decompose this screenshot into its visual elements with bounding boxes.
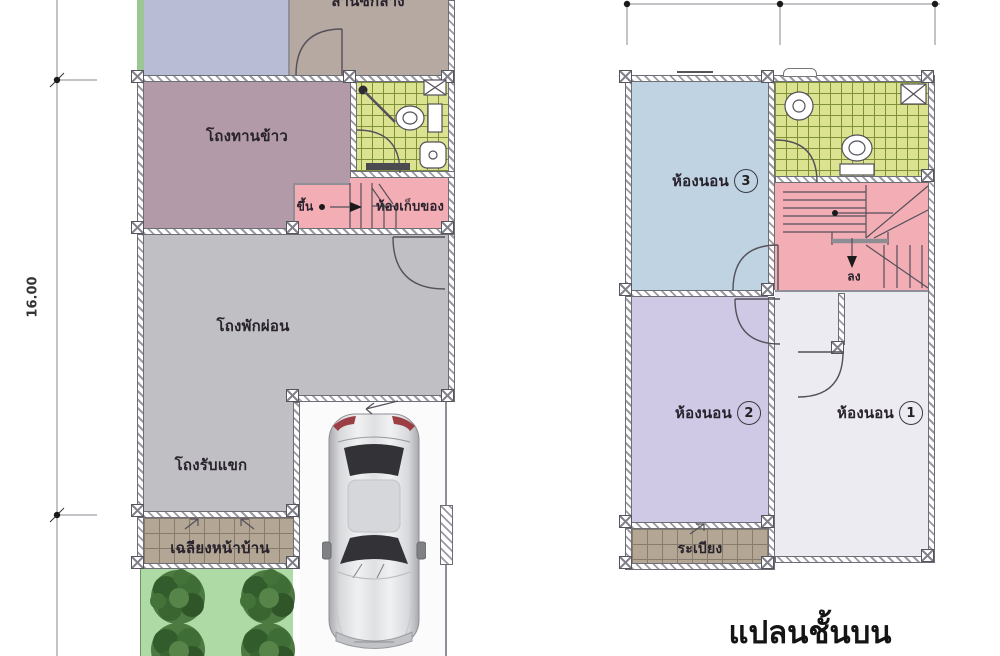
bedroom-1-number: 1 [899,401,923,425]
wall-segment [625,522,768,529]
side-yard-green-strip [137,0,144,75]
wall-segment [625,563,775,570]
wall-segment [625,290,768,297]
wall-segment [137,563,300,569]
wall-segment [137,75,455,82]
living-hall [144,235,448,395]
wall-pier [761,70,774,83]
wall-pier [761,515,774,528]
stair-boundary-line [293,183,350,185]
wall-pier [619,283,632,296]
dimension-line-top [624,1,940,45]
wall-pier [286,504,299,517]
wall-pier [619,515,632,528]
wall-segment [137,511,300,518]
wall-pier [131,504,144,517]
wall-segment [838,293,845,345]
floor-plan-canvas: ลานซักล้าง โถงทานข้าว ขึ้น ห้องเก็บของ โ… [0,0,1000,656]
wall-segment [928,75,935,563]
wall-pier [131,70,144,83]
wall-pier [441,389,454,402]
washing-area-label: ลานซักล้าง [331,0,405,13]
bedroom-1-text: ห้องนอน [837,401,894,425]
storage-label: ห้องเก็บของ [376,196,444,217]
wall-segment [350,171,455,178]
wall-pier [619,70,632,83]
wall-pier [921,70,934,83]
wall-pier [131,221,144,234]
stairs-down-label: ลง [847,268,861,287]
wall-pier [761,556,774,569]
wall-pier [921,169,934,182]
stairs-up-label: ขึ้น [297,198,314,217]
wall-segment [625,75,632,570]
canopy-mark [783,68,817,77]
bathroom-upper [775,82,928,176]
carport-right-post [440,505,453,565]
bathroom-ground [350,82,448,171]
wall-segment [448,0,455,402]
window-mark [677,71,713,73]
living-label: โถงพักผ่อน [216,314,289,338]
wall-segment [768,297,775,522]
wall-segment [293,402,300,511]
wall-segment [775,556,935,563]
bedroom-2-number: 2 [737,401,761,425]
bedroom-3-label: ห้องนอน 3 [672,169,758,193]
wall-pier [921,549,934,562]
side-yard [144,0,288,75]
wall-pier [131,556,144,569]
wall-pier [831,341,844,354]
garden [140,569,293,656]
wall-pier [441,221,454,234]
wall-segment [768,82,775,290]
balcony-label: ระเบียง [678,538,723,560]
dimension-label: 16.00 [26,276,41,317]
wall-pier [286,556,299,569]
guest-label: โถงรับแขก [175,453,248,477]
bedroom-2-label: ห้องนอน 2 [675,401,761,425]
wall-pier [441,70,454,83]
dining-label: โถงทานข้าว [206,124,288,148]
dimension-line-left [50,0,97,656]
plan-title: แปลนชั้นบน [729,607,892,656]
wall-pier [619,556,632,569]
wall-segment [293,395,455,402]
wall-pier [343,70,356,83]
bedroom-2-text: ห้องนอน [675,401,732,425]
bedroom-3-text: ห้องนอน [672,169,729,193]
bedroom-1-label: ห้องนอน 1 [837,401,923,425]
yard-divider-line [288,0,290,75]
carport [300,402,445,656]
wall-pier [286,389,299,402]
wall-segment [775,176,928,183]
stair-boundary-line [775,290,928,292]
wall-segment [137,75,144,569]
wall-pier [761,283,774,296]
porch-label: เฉลียงหน้าบ้าน [170,536,270,560]
wall-pier [286,221,299,234]
bedroom-3-number: 3 [734,169,758,193]
wall-segment [625,75,935,82]
wall-segment [350,82,357,171]
